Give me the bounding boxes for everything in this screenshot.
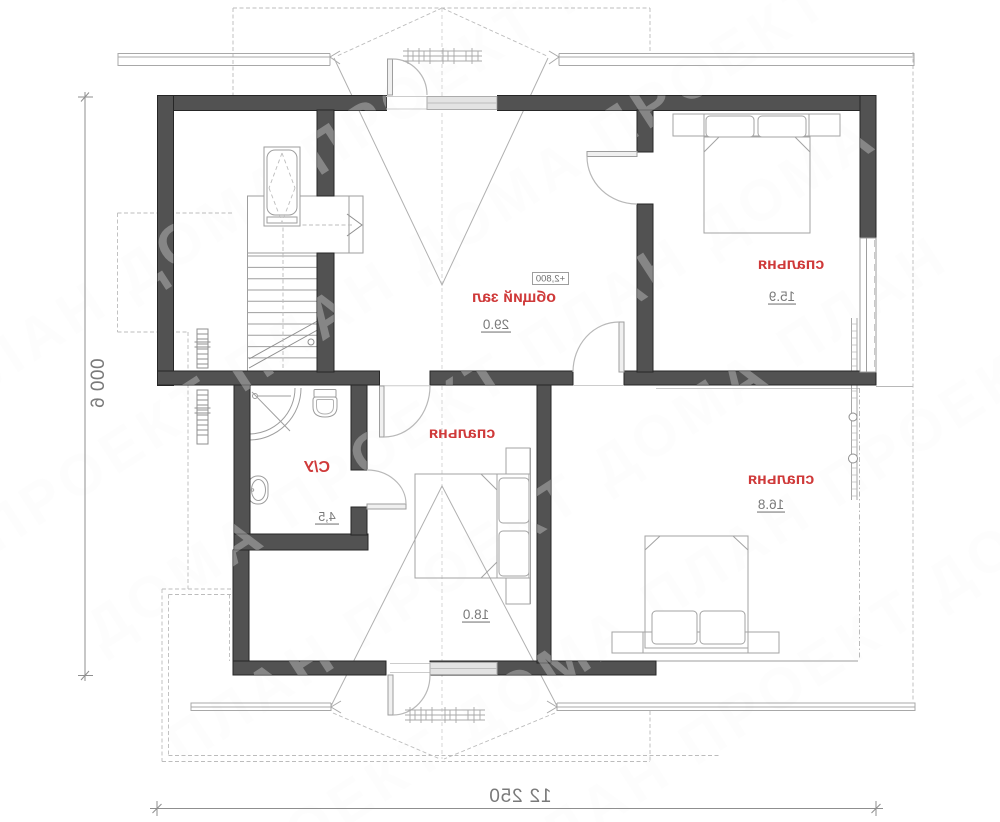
svg-text:С/У: С/У bbox=[303, 459, 330, 476]
svg-text:12 250: 12 250 bbox=[489, 786, 552, 807]
svg-text:4,5: 4,5 bbox=[318, 510, 335, 524]
svg-text:спальня: спальня bbox=[758, 256, 824, 273]
svg-text:спальня: спальня bbox=[429, 425, 495, 442]
svg-text:+2,800: +2,800 bbox=[536, 274, 565, 285]
svg-text:16.8: 16.8 bbox=[758, 497, 784, 512]
svg-text:15.9: 15.9 bbox=[769, 289, 795, 304]
svg-text:общий зал: общий зал bbox=[472, 289, 556, 306]
svg-text:спальня: спальня bbox=[748, 471, 814, 488]
svg-text:9 000: 9 000 bbox=[86, 358, 107, 408]
svg-text:29.0: 29.0 bbox=[483, 317, 509, 332]
svg-text:18.0: 18.0 bbox=[463, 607, 489, 622]
